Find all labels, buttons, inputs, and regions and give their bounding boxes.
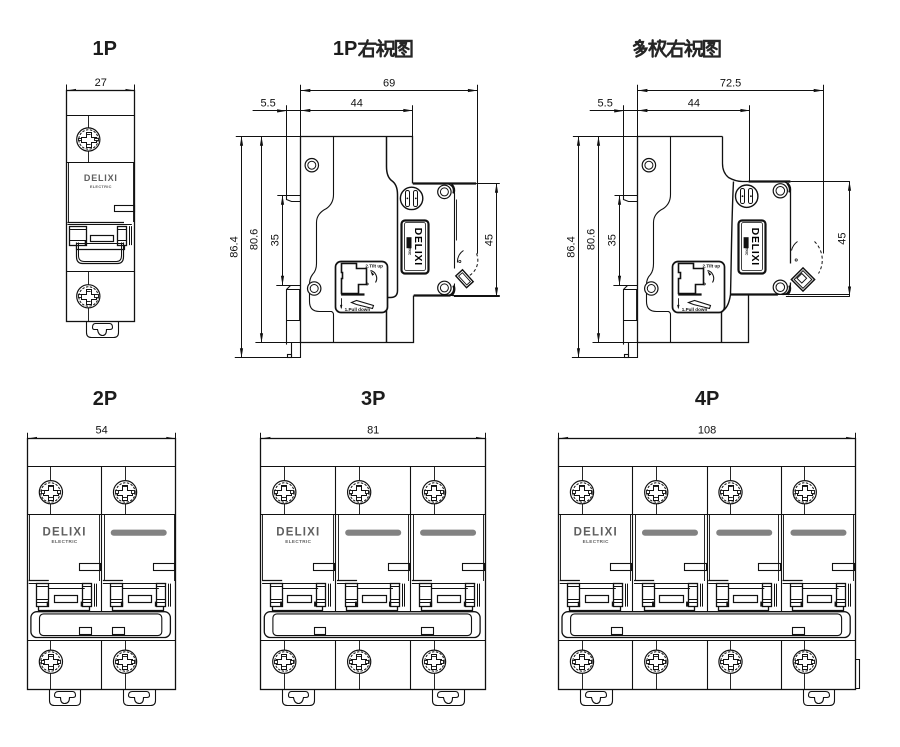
svg-text:80.6: 80.6: [248, 229, 260, 250]
svg-text:45: 45: [483, 234, 495, 246]
svg-text:69: 69: [383, 77, 395, 89]
svg-text:2.Tilt up: 2.Tilt up: [703, 264, 721, 269]
svg-text:ELECTRIC: ELECTRIC: [51, 539, 77, 544]
svg-text:45: 45: [837, 232, 849, 244]
svg-text:1.Pull down: 1.Pull down: [345, 307, 371, 312]
svg-text:81: 81: [367, 424, 379, 436]
svg-text:2.Tilt up: 2.Tilt up: [365, 264, 383, 269]
svg-text:108: 108: [698, 424, 716, 436]
svg-text:27: 27: [95, 77, 107, 89]
svg-text:ELECTRIC: ELECTRIC: [90, 184, 112, 189]
svg-text:ELECTRIC: ELECTRIC: [285, 539, 311, 544]
svg-text:80.6: 80.6: [585, 229, 597, 250]
svg-text:1.Pull down: 1.Pull down: [682, 307, 708, 312]
svg-text:1P: 1P: [333, 38, 357, 60]
svg-text:5.5: 5.5: [598, 98, 613, 110]
svg-text:DELIXI: DELIXI: [276, 527, 320, 539]
svg-text:DELIXI: DELIXI: [412, 228, 423, 266]
svg-text:DELIXI: DELIXI: [42, 527, 86, 539]
svg-text:4P: 4P: [695, 388, 719, 410]
svg-text:35: 35: [269, 234, 281, 246]
svg-text:72.5: 72.5: [720, 77, 741, 89]
svg-text:ELECTRIC: ELECTRIC: [583, 539, 609, 544]
svg-text:86.4: 86.4: [228, 236, 240, 257]
svg-text:1P: 1P: [92, 38, 116, 60]
svg-text:DELIXI: DELIXI: [84, 173, 118, 183]
svg-text:2P: 2P: [93, 388, 117, 410]
svg-text:44: 44: [688, 98, 700, 110]
svg-text:54: 54: [96, 424, 108, 436]
svg-text:44: 44: [351, 98, 363, 110]
svg-text:3P: 3P: [361, 388, 385, 410]
svg-text:86.4: 86.4: [565, 236, 577, 257]
svg-text:35: 35: [607, 234, 619, 246]
svg-text:5.5: 5.5: [260, 98, 275, 110]
svg-text:DELIXI: DELIXI: [574, 527, 618, 539]
svg-text:DELIXI: DELIXI: [749, 228, 760, 266]
